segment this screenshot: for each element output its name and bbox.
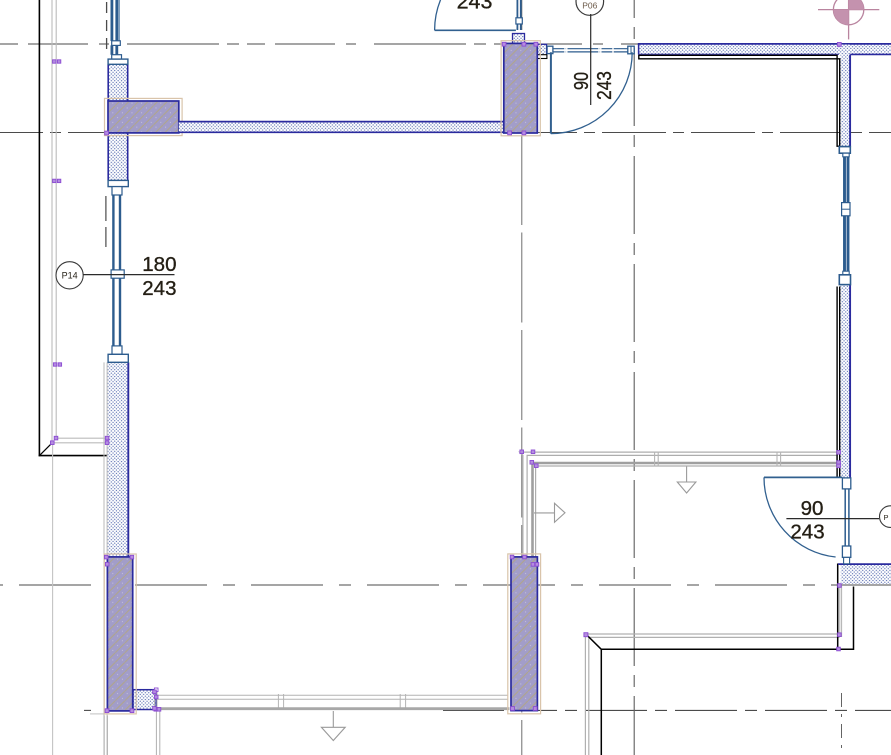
svg-text:243: 243 xyxy=(790,521,824,544)
svg-text:P06: P06 xyxy=(582,1,597,11)
svg-text:P: P xyxy=(883,513,888,522)
svg-text:P14: P14 xyxy=(62,271,78,281)
svg-text:90: 90 xyxy=(569,72,592,90)
svg-text:243: 243 xyxy=(594,71,617,100)
svg-text:180: 180 xyxy=(142,253,176,276)
svg-text:243: 243 xyxy=(457,0,493,13)
svg-text:243: 243 xyxy=(142,277,176,300)
svg-text:90: 90 xyxy=(801,497,824,520)
